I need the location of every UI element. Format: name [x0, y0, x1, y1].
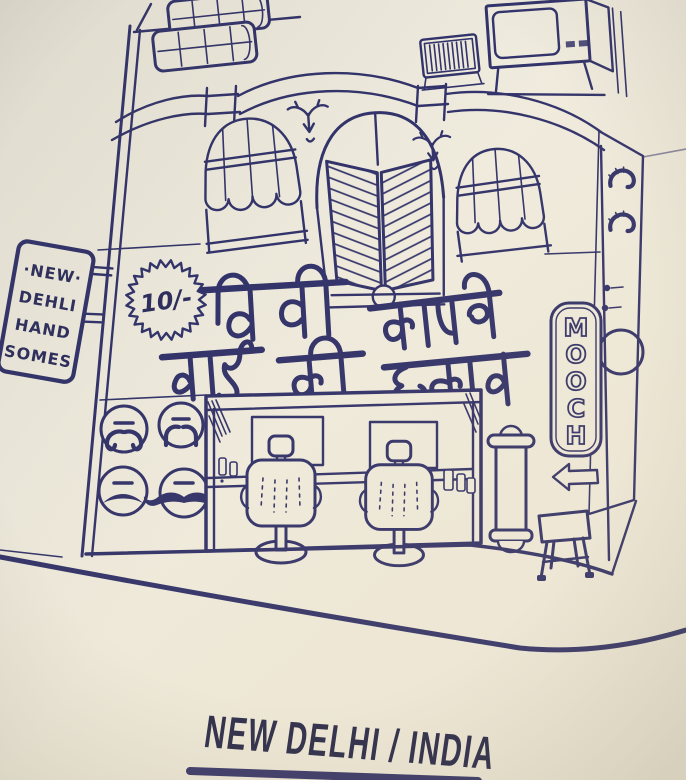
photo-warm-shade	[0, 0, 686, 780]
photo-of-barbershop-print: 10/- ·NEW· DEHLI HAND SOMES	[0, 0, 686, 780]
